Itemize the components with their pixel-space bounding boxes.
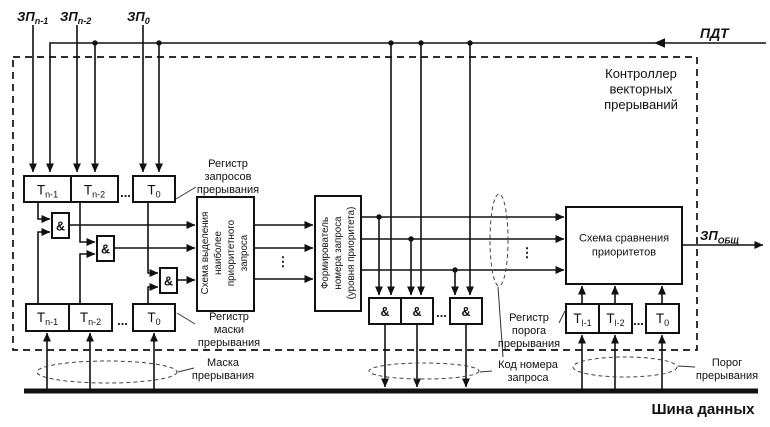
zp-input-label-n2: ЗПn-2 [60,9,91,26]
request-number-former-text: Формирователь номера запроса (уровня при… [320,207,357,300]
svg-text:Код номера: Код номера [498,359,559,371]
zp-common-output-label: ЗПОБЩ [700,228,739,246]
svg-text:Схема выделения: Схема выделения [200,212,211,295]
svg-text:Схема сравнения: Схема сравнения [579,233,669,245]
and-gate-1-symbol: & [56,220,65,234]
svg-text:прерываний: прерываний [604,97,678,112]
and-gate-2-symbol: & [101,243,110,257]
mask-row-ellipsis: ... [117,313,128,328]
pdt-label: ПДТ [700,25,730,41]
threshold-bus-annotation: Порог прерывания [696,357,758,382]
svg-text:Маска: Маска [207,357,240,369]
request-register-annotation: Регистр запросов прерывания [197,158,259,196]
svg-text:Порог: Порог [712,357,742,369]
svg-text:Регистр: Регистр [208,158,248,170]
svg-text:запроса: запроса [239,234,250,271]
bus-and-gate-2-symbol: & [412,305,421,319]
zp-input-label-0: ЗП0 [127,9,150,26]
controller-title: Контроллер векторных прерываний [604,66,678,112]
mask-bus-annotation: Маска прерывания [192,357,254,382]
svg-text:прерывания: прерывания [498,338,560,350]
svg-text:приоритетов: приоритетов [592,247,656,259]
mask-register-annotation: Регистр маски прерывания [198,311,260,349]
code-lines-vdots: ⋮ [521,245,534,260]
selector-former-vdots: ⋮ [277,254,290,269]
diagram-canvas: ЗПn-1 ЗПn-2 ЗП0 ПДТ Контроллер векторных… [0,0,770,427]
junction-dots [92,40,472,272]
svg-text:(уровня приоритета): (уровня приоритета) [346,207,357,300]
svg-text:маски: маски [214,324,244,336]
bus-and-gate-1-symbol: & [380,305,389,319]
svg-text:запросов: запросов [205,171,252,183]
svg-text:наиболее: наиболее [213,231,224,275]
svg-text:Регистр: Регистр [209,311,249,323]
code-lines-ellipse [490,194,508,286]
mask-bus-ellipse [37,361,177,383]
zp-input-label-n1: ЗПn-1 [17,9,48,26]
svg-text:приоритетного: приоритетного [226,219,237,286]
data-bus-label: Шина данных [651,401,755,418]
bus-and-gate-3-symbol: & [461,305,470,319]
and-gate-3-symbol: & [164,275,173,289]
interrupt-controller-diagram: ЗПn-1 ЗПn-2 ЗП0 ПДТ Контроллер векторных… [0,0,770,427]
svg-text:Регистр: Регистр [509,312,549,324]
svg-text:прерывания: прерывания [192,370,254,382]
bus-gates-ellipsis: ... [436,305,447,320]
svg-text:векторных: векторных [609,82,673,97]
svg-text:Контроллер: Контроллер [605,66,677,81]
svg-text:Формирователь: Формирователь [320,217,331,289]
request-row-ellipsis: ... [120,185,131,200]
svg-text:прерывания: прерывания [197,184,259,196]
svg-text:порога: порога [512,325,547,337]
threshold-register-annotation: Регистр порога прерывания [498,312,560,350]
svg-text:прерывания: прерывания [198,337,260,349]
svg-text:запроса: запроса [508,372,550,384]
svg-text:прерывания: прерывания [696,370,758,382]
threshold-row-ellipsis: ... [633,313,644,328]
svg-text:номера запроса: номера запроса [333,216,344,290]
priority-comparator-block [566,207,682,284]
code-bus-annotation: Код номера запроса [498,359,559,384]
